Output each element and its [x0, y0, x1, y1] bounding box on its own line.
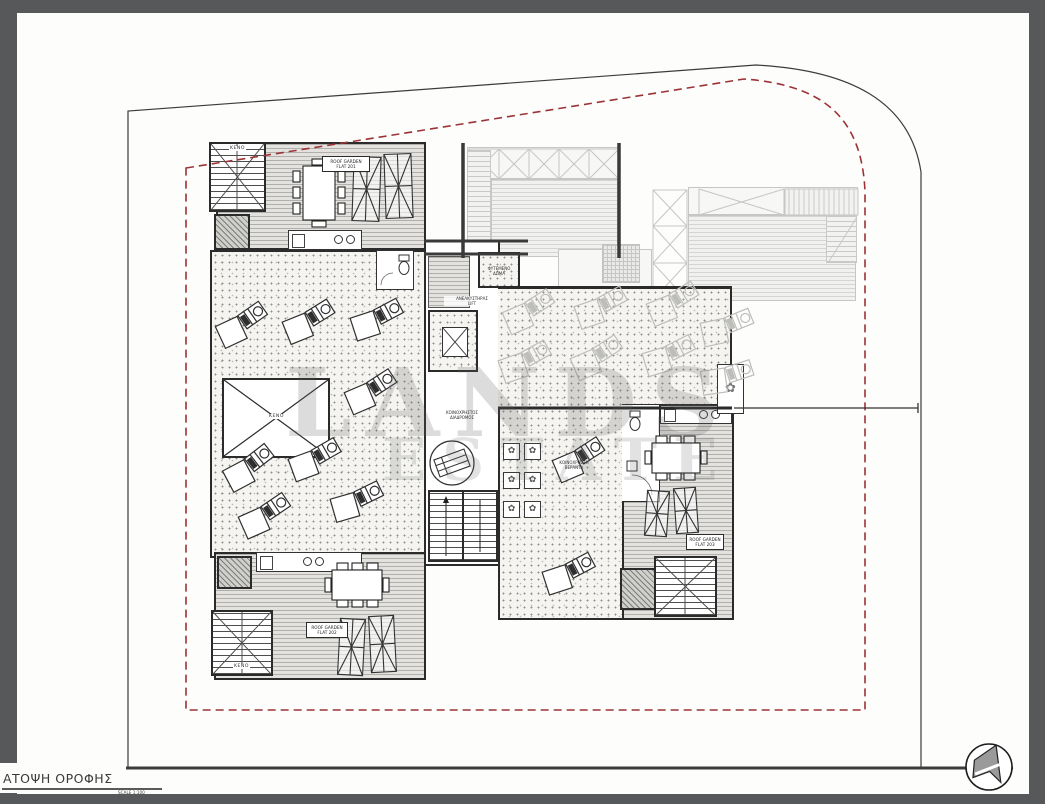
architectural-drawing-sheet: ΚΕΝΟ ΚΕΝΟ ΚΕΝΟ [0, 0, 1045, 804]
planter-icon: ✿ [524, 472, 541, 489]
planter-icon: ✿ [524, 443, 541, 460]
flat-label-bottom: ROOF GARDEN FLAT 202 [306, 622, 348, 638]
ghost-sun-lounger-icon [634, 323, 706, 386]
sun-lounger-icon [336, 357, 408, 423]
north-arrow-icon [960, 738, 1018, 796]
lift-label: ΑΝΕΛΚΥΣΤΗΡΑΣ LIFT [444, 296, 500, 306]
flat-label-right: ROOF GARDEN FLAT 203 [686, 534, 724, 550]
sun-lounger-icon [322, 469, 393, 531]
corridor-label-line2: ΔΙΑΔΡΟΜΟΣ [428, 415, 496, 420]
planter-icon: ✿ [503, 501, 520, 518]
sun-lounger-icon [544, 425, 616, 491]
planter-icon: ✿ [524, 501, 541, 518]
flat-label-line2: FLAT 203 [688, 542, 722, 547]
furniture-layer: ✿✿✿✿✿✿ [0, 0, 1045, 804]
sun-lounger-icon [207, 289, 279, 356]
common-label-line2: ΒΕΡΑΝΤΑ [545, 465, 603, 470]
ghost-sun-lounger-icon [490, 328, 562, 392]
parasol-icon [368, 614, 398, 673]
parasol-icon [643, 489, 670, 538]
drawing-title: ΑΤΟΨΗ ΟΡΟΦΗΣ [3, 771, 113, 786]
sun-lounger-icon [342, 286, 414, 349]
lift-label-line2: LIFT [444, 301, 500, 306]
flat-label-line2: FLAT 202 [308, 630, 346, 635]
scale-label: SCALE 1:100 [118, 790, 145, 795]
flat-label-top: ROOF GARDEN FLAT 201 [322, 156, 370, 172]
planter-icon: ✿ [503, 472, 520, 489]
ghost-sun-lounger-icon [562, 323, 634, 389]
sun-lounger-icon [534, 540, 606, 603]
ghost-sun-lounger-icon [494, 277, 566, 343]
flat-label-line2: FLAT 201 [324, 164, 368, 169]
planter-icon: ✿ [503, 443, 520, 460]
corridor-label: ΚΟΙΝΟΧΡΗΣΤΟΣ ΔΙΑΔΡΟΜΟΣ [428, 410, 496, 420]
sun-lounger-icon [280, 426, 352, 491]
sun-lounger-icon [274, 287, 346, 353]
parasol-icon [672, 486, 699, 535]
parasol-icon [383, 153, 414, 220]
common-terrace-label: ΚΟΙΝΟΧΡΗΣΤΗ ΒΕΡΑΝΤΑ [545, 460, 603, 470]
